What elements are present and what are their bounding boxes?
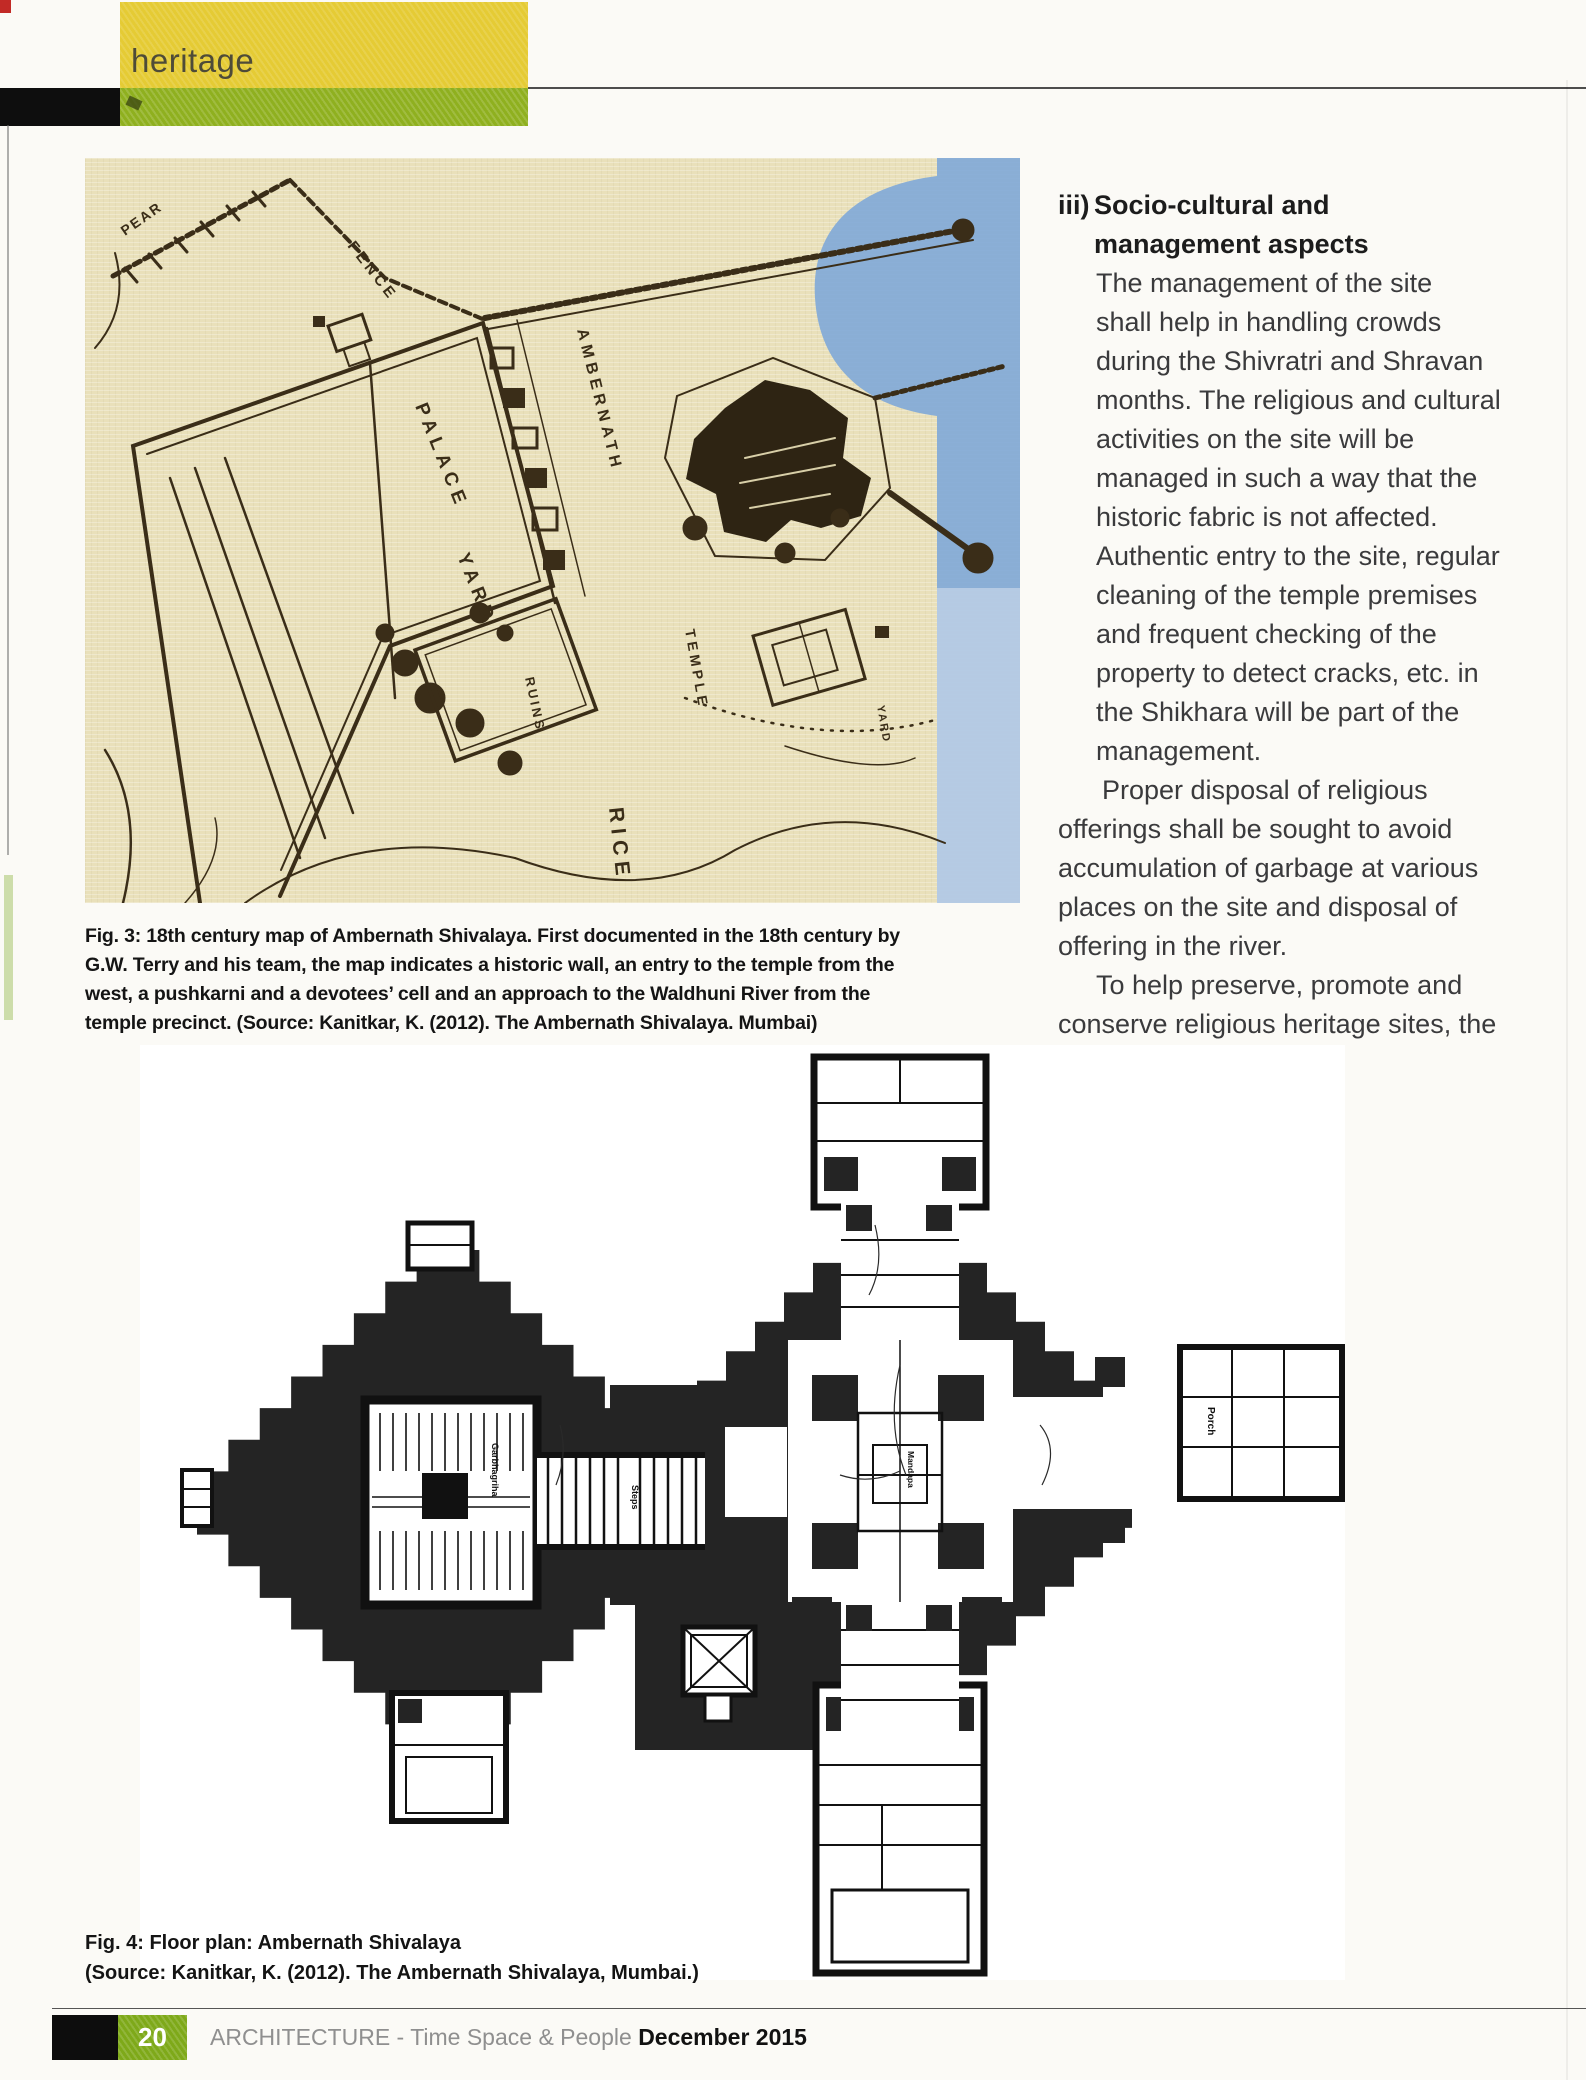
figure4-floor-plan-image: Garbhagriha Steps Mandapa Porch — [140, 1045, 1345, 1980]
header-green-banner — [120, 88, 528, 126]
body-line: shall help in handling crowds — [1096, 303, 1578, 342]
header-black-bar — [0, 88, 120, 126]
body-line: property to detect cracks, etc. in — [1096, 654, 1578, 693]
page-edge-strip — [4, 875, 13, 1020]
caption-line: Fig. 3: 18th century map of Ambernath Sh… — [85, 922, 1020, 951]
body-line: activities on the site will be — [1096, 420, 1578, 459]
plan-label-porch: Porch — [1205, 1407, 1216, 1435]
plan-label-mandapa: Mandapa — [906, 1451, 916, 1488]
body-line: offerings shall be sought to avoid — [1058, 810, 1578, 849]
page-edge-line — [7, 125, 9, 855]
body-line: and frequent checking of the — [1096, 615, 1578, 654]
heading-number: iii) — [1058, 186, 1094, 225]
page-number: 20 — [118, 2015, 187, 2060]
footer-text: ARCHITECTURE - Time Space & People Decem… — [210, 2015, 807, 2060]
issue-date: December 2015 — [638, 2024, 807, 2050]
map-label-yard: YARD — [452, 550, 500, 628]
body-line: the Shikhara will be part of the — [1096, 693, 1578, 732]
figure3-map-image: PEAR FENCE PALACE YARD AMBERNATH TEMPLE … — [85, 158, 1020, 903]
section-title: heritage — [131, 42, 254, 80]
caption-line: Fig. 4: Floor plan: Ambernath Shivalaya — [85, 1928, 785, 1958]
map-drawing: PEAR FENCE PALACE YARD AMBERNATH TEMPLE … — [85, 158, 1020, 903]
map-label-ambernath: AMBERNATH — [573, 327, 625, 474]
body-line: conserve religious heritage sites, the — [1058, 1005, 1578, 1044]
body-line: historic fabric is not affected. — [1096, 498, 1578, 537]
caption-line: temple precinct. (Source: Kanitkar, K. (… — [85, 1009, 1020, 1038]
map-label-palace: PALACE — [410, 400, 472, 512]
body-line: Proper disposal of religious — [1102, 771, 1578, 810]
map-label-fence: FENCE — [344, 238, 401, 304]
body-line: accumulation of garbage at various — [1058, 849, 1578, 888]
map-label-ruins: RUINS — [522, 676, 548, 733]
body-line: places on the site and disposal of — [1058, 888, 1578, 927]
map-label-rice: RICE — [604, 806, 635, 882]
article-heading: iii)Socio-cultural and — [1058, 186, 1578, 225]
body-line: offering in the river. — [1058, 927, 1578, 966]
magazine-page: heritage — [0, 0, 1586, 2080]
body-line: Authentic entry to the site, regular — [1096, 537, 1578, 576]
body-line: cleaning of the temple premises — [1096, 576, 1578, 615]
header-rule — [528, 87, 1586, 89]
body-line: management. — [1096, 732, 1578, 771]
caption-line: (Source: Kanitkar, K. (2012). The Ambern… — [85, 1958, 785, 1988]
body-line: To help preserve, promote and — [1096, 966, 1578, 1005]
article-column: iii)Socio-cultural and management aspect… — [1058, 186, 1578, 1044]
caption-line: west, a pushkarni and a devotees’ cell a… — [85, 980, 1020, 1009]
map-label-pear: PEAR — [118, 198, 166, 238]
footer-black-box — [52, 2015, 118, 2060]
heading-text-2: management aspects — [1094, 225, 1578, 264]
figure3-caption: Fig. 3: 18th century map of Ambernath Sh… — [85, 922, 1020, 1038]
plan-label-garbhagriha: Garbhagriha — [490, 1443, 500, 1498]
plan-label-steps: Steps — [630, 1485, 640, 1510]
body-line: managed in such a way that the — [1096, 459, 1578, 498]
heading-text-1: Socio-cultural and — [1094, 190, 1330, 220]
body-line: months. The religious and cultural — [1096, 381, 1578, 420]
corner-red-mark — [0, 0, 11, 13]
blue-graphic — [815, 158, 1020, 903]
body-line: during the Shivratri and Shravan — [1096, 342, 1578, 381]
floor-plan-drawing: Garbhagriha Steps Mandapa Porch — [140, 1045, 1345, 1980]
map-label-yard2: YARD — [874, 704, 892, 744]
footer-rule — [52, 2008, 1586, 2009]
caption-line: G.W. Terry and his team, the map indicat… — [85, 951, 1020, 980]
magazine-title: ARCHITECTURE - Time Space & People — [210, 2024, 632, 2050]
figure4-caption: Fig. 4: Floor plan: Ambernath Shivalaya … — [85, 1928, 785, 1988]
body-line: The management of the site — [1096, 264, 1578, 303]
